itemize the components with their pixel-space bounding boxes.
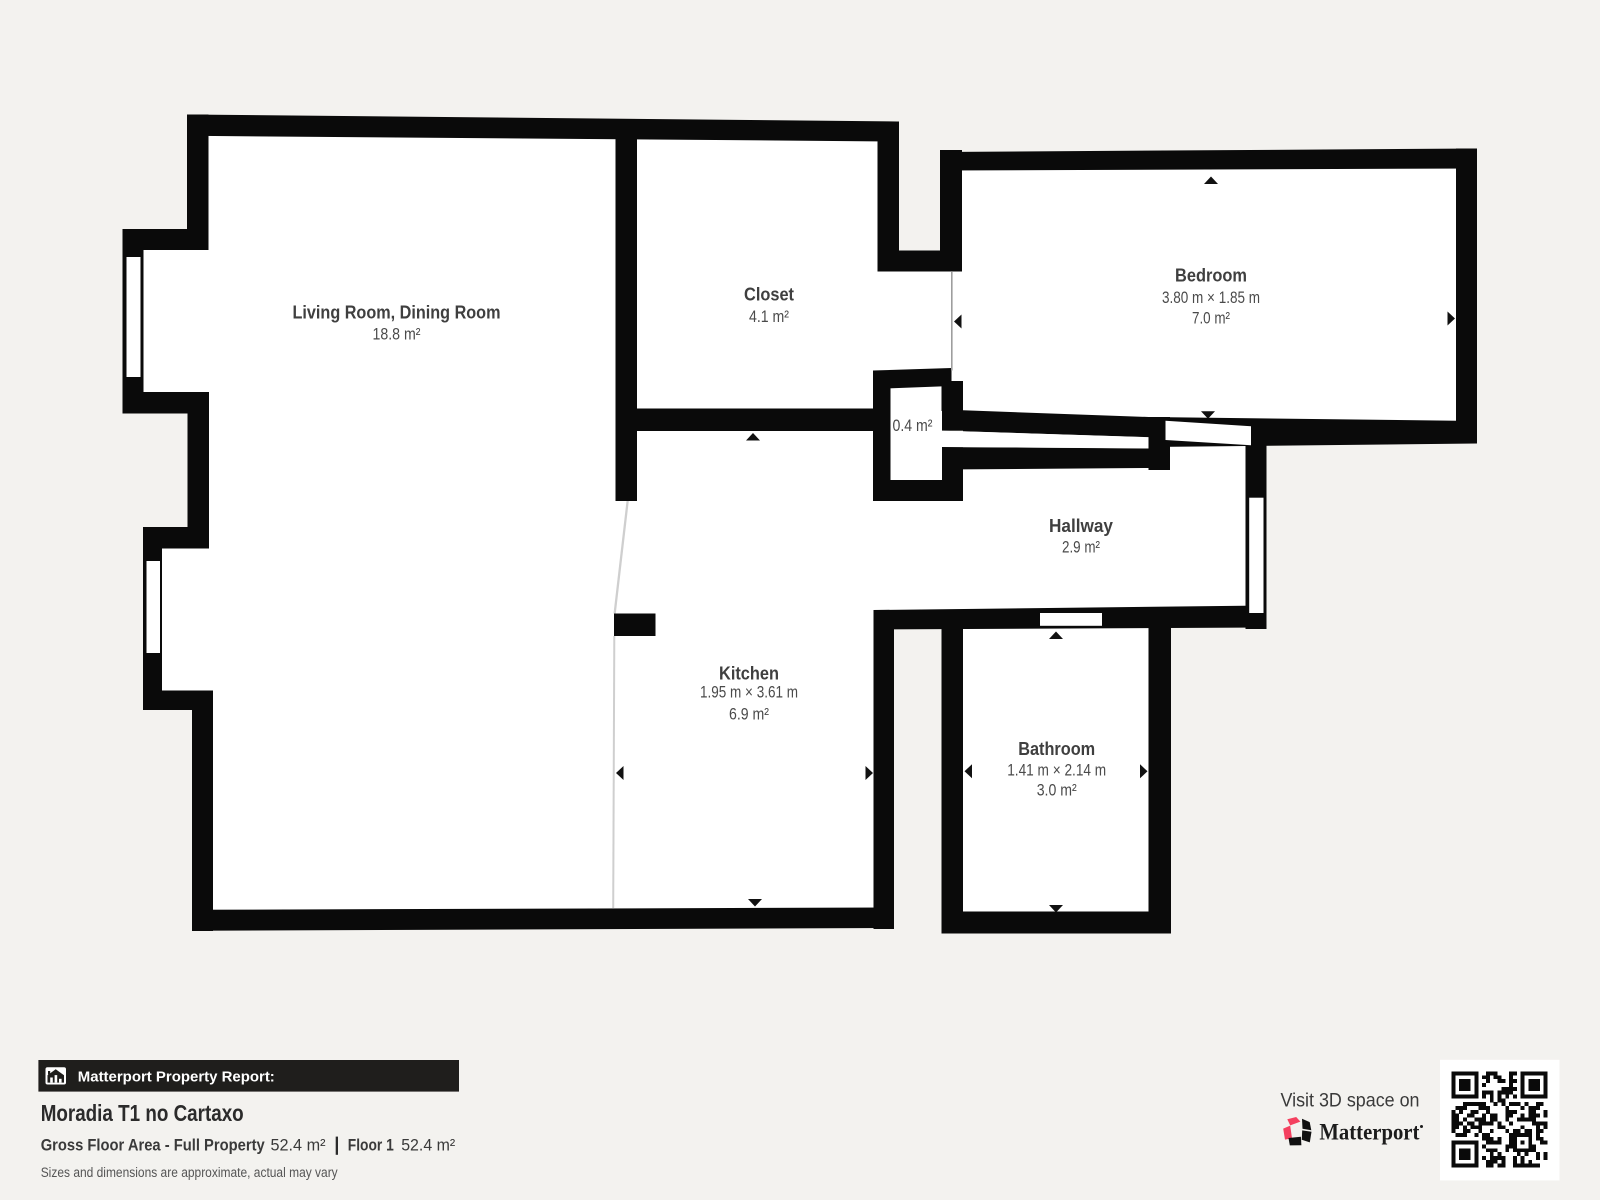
svg-text:Moradia T1 no Cartaxo: Moradia T1 no Cartaxo — [41, 1100, 244, 1126]
svg-text:Hallway: Hallway — [1049, 515, 1114, 536]
svg-text:7.0 m²: 7.0 m² — [1192, 310, 1230, 328]
svg-text:Kitchen: Kitchen — [719, 663, 779, 684]
svg-text:Matterport Property Report:: Matterport Property Report: — [78, 1069, 275, 1086]
svg-text:Visit 3D space on: Visit 3D space on — [1281, 1090, 1420, 1112]
svg-text:52.4 m²: 52.4 m² — [401, 1137, 455, 1155]
svg-text:Floor 1: Floor 1 — [348, 1137, 394, 1155]
svg-text:Bedroom: Bedroom — [1175, 265, 1247, 286]
svg-text:Bathroom: Bathroom — [1018, 738, 1095, 759]
svg-text:3.0 m²: 3.0 m² — [1037, 782, 1077, 800]
svg-text:Living Room, Dining Room: Living Room, Dining Room — [293, 302, 501, 323]
svg-text:Closet: Closet — [744, 284, 794, 305]
svg-text:52.4 m²: 52.4 m² — [271, 1137, 326, 1155]
svg-text:18.8 m²: 18.8 m² — [373, 326, 421, 344]
svg-text:Gross Floor Area - Full Proper: Gross Floor Area - Full Property — [41, 1137, 266, 1155]
svg-text:4.1 m²: 4.1 m² — [749, 308, 789, 326]
svg-text:Sizes and dimensions are appro: Sizes and dimensions are approximate, ac… — [41, 1165, 338, 1180]
svg-text:3.80 m × 1.85 m: 3.80 m × 1.85 m — [1162, 289, 1260, 307]
svg-text:2.9 m²: 2.9 m² — [1062, 539, 1100, 557]
svg-text:1.41 m × 2.14 m: 1.41 m × 2.14 m — [1007, 762, 1106, 780]
svg-text:6.9 m²: 6.9 m² — [729, 706, 769, 724]
svg-text:Matterport: Matterport — [1319, 1120, 1419, 1145]
svg-text:0.4 m²: 0.4 m² — [893, 417, 933, 435]
svg-text:1.95 m × 3.61 m: 1.95 m × 3.61 m — [700, 684, 798, 702]
